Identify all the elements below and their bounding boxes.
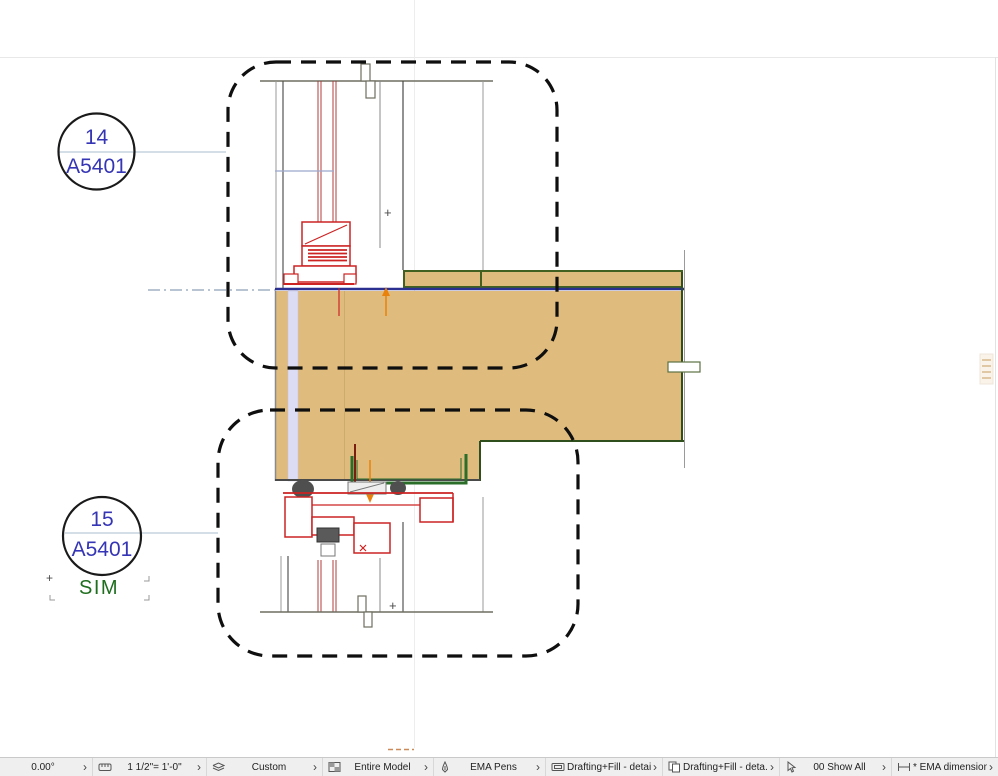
callout-15-sheet[interactable]: A5401 bbox=[63, 538, 141, 562]
pen-set-control[interactable]: EMA Pens › bbox=[434, 758, 546, 776]
callout-15-number[interactable]: 15 bbox=[63, 508, 141, 532]
sim-label[interactable]: SIM bbox=[79, 577, 119, 600]
hotspot-plus-top: + bbox=[384, 206, 392, 219]
dimension-icon bbox=[897, 761, 911, 773]
chevron-right-icon: › bbox=[770, 762, 774, 772]
layer-combination-value: Custom bbox=[227, 762, 311, 773]
chevron-right-icon: › bbox=[313, 762, 317, 772]
scale-value: 1 1/2"= 1'-0" bbox=[114, 762, 195, 773]
chevron-right-icon: › bbox=[197, 762, 201, 772]
chevron-right-icon: › bbox=[536, 762, 540, 772]
chevron-right-icon: › bbox=[83, 762, 87, 772]
model-view-options-control[interactable]: Drafting+Fill - detail › bbox=[546, 758, 663, 776]
drawing-canvas[interactable] bbox=[0, 0, 998, 776]
dimension-style-control[interactable]: * EMA dimensions › bbox=[892, 758, 998, 776]
status-bar: 0.00° › 1 1/2"= 1'-0" › Custom › bbox=[0, 757, 998, 776]
chevron-right-icon: › bbox=[989, 762, 993, 772]
chevron-right-icon: › bbox=[882, 762, 886, 772]
grid-icon bbox=[328, 761, 341, 773]
chevron-right-icon: › bbox=[653, 762, 657, 772]
graphic-override-control[interactable]: Drafting+Fill - deta... › bbox=[663, 758, 780, 776]
rotation-angle-control[interactable]: 0.00° › bbox=[0, 758, 93, 776]
hotspot-plus-bottom: + bbox=[389, 599, 397, 612]
frame-icon bbox=[551, 761, 565, 773]
layer-filter-control[interactable]: 00 Show All › bbox=[780, 758, 892, 776]
hotspot-plus-sim: + bbox=[46, 572, 53, 585]
layer-filter-value: 00 Show All bbox=[799, 762, 880, 773]
pen-set-value: EMA Pens bbox=[453, 762, 534, 773]
cad-detail-viewport: 14 A5401 15 A5401 SIM + + + 0.00° › 1 1/… bbox=[0, 0, 998, 776]
model-view-options-value: Drafting+Fill - detail bbox=[567, 762, 651, 773]
scale-control[interactable]: 1 1/2"= 1'-0" › bbox=[93, 758, 207, 776]
layers-icon bbox=[212, 761, 225, 773]
layer-cursor-icon bbox=[785, 761, 797, 773]
graphic-override-value: Drafting+Fill - deta... bbox=[683, 762, 768, 773]
layer-combination-control[interactable]: Custom › bbox=[207, 758, 323, 776]
ruler-icon bbox=[98, 761, 112, 773]
rotation-angle-value: 0.00° bbox=[5, 762, 81, 773]
callout-14-sheet[interactable]: A5401 bbox=[58, 155, 135, 179]
dimension-style-value: * EMA dimensions bbox=[913, 762, 987, 773]
right-edge-grip[interactable] bbox=[980, 354, 993, 384]
pen-icon bbox=[439, 761, 451, 773]
chevron-right-icon: › bbox=[424, 762, 428, 772]
callout-14-number[interactable]: 14 bbox=[58, 126, 135, 150]
copy-icon bbox=[668, 761, 681, 773]
structure-display-value: Entire Model bbox=[343, 762, 422, 773]
structure-display-control[interactable]: Entire Model › bbox=[323, 758, 434, 776]
